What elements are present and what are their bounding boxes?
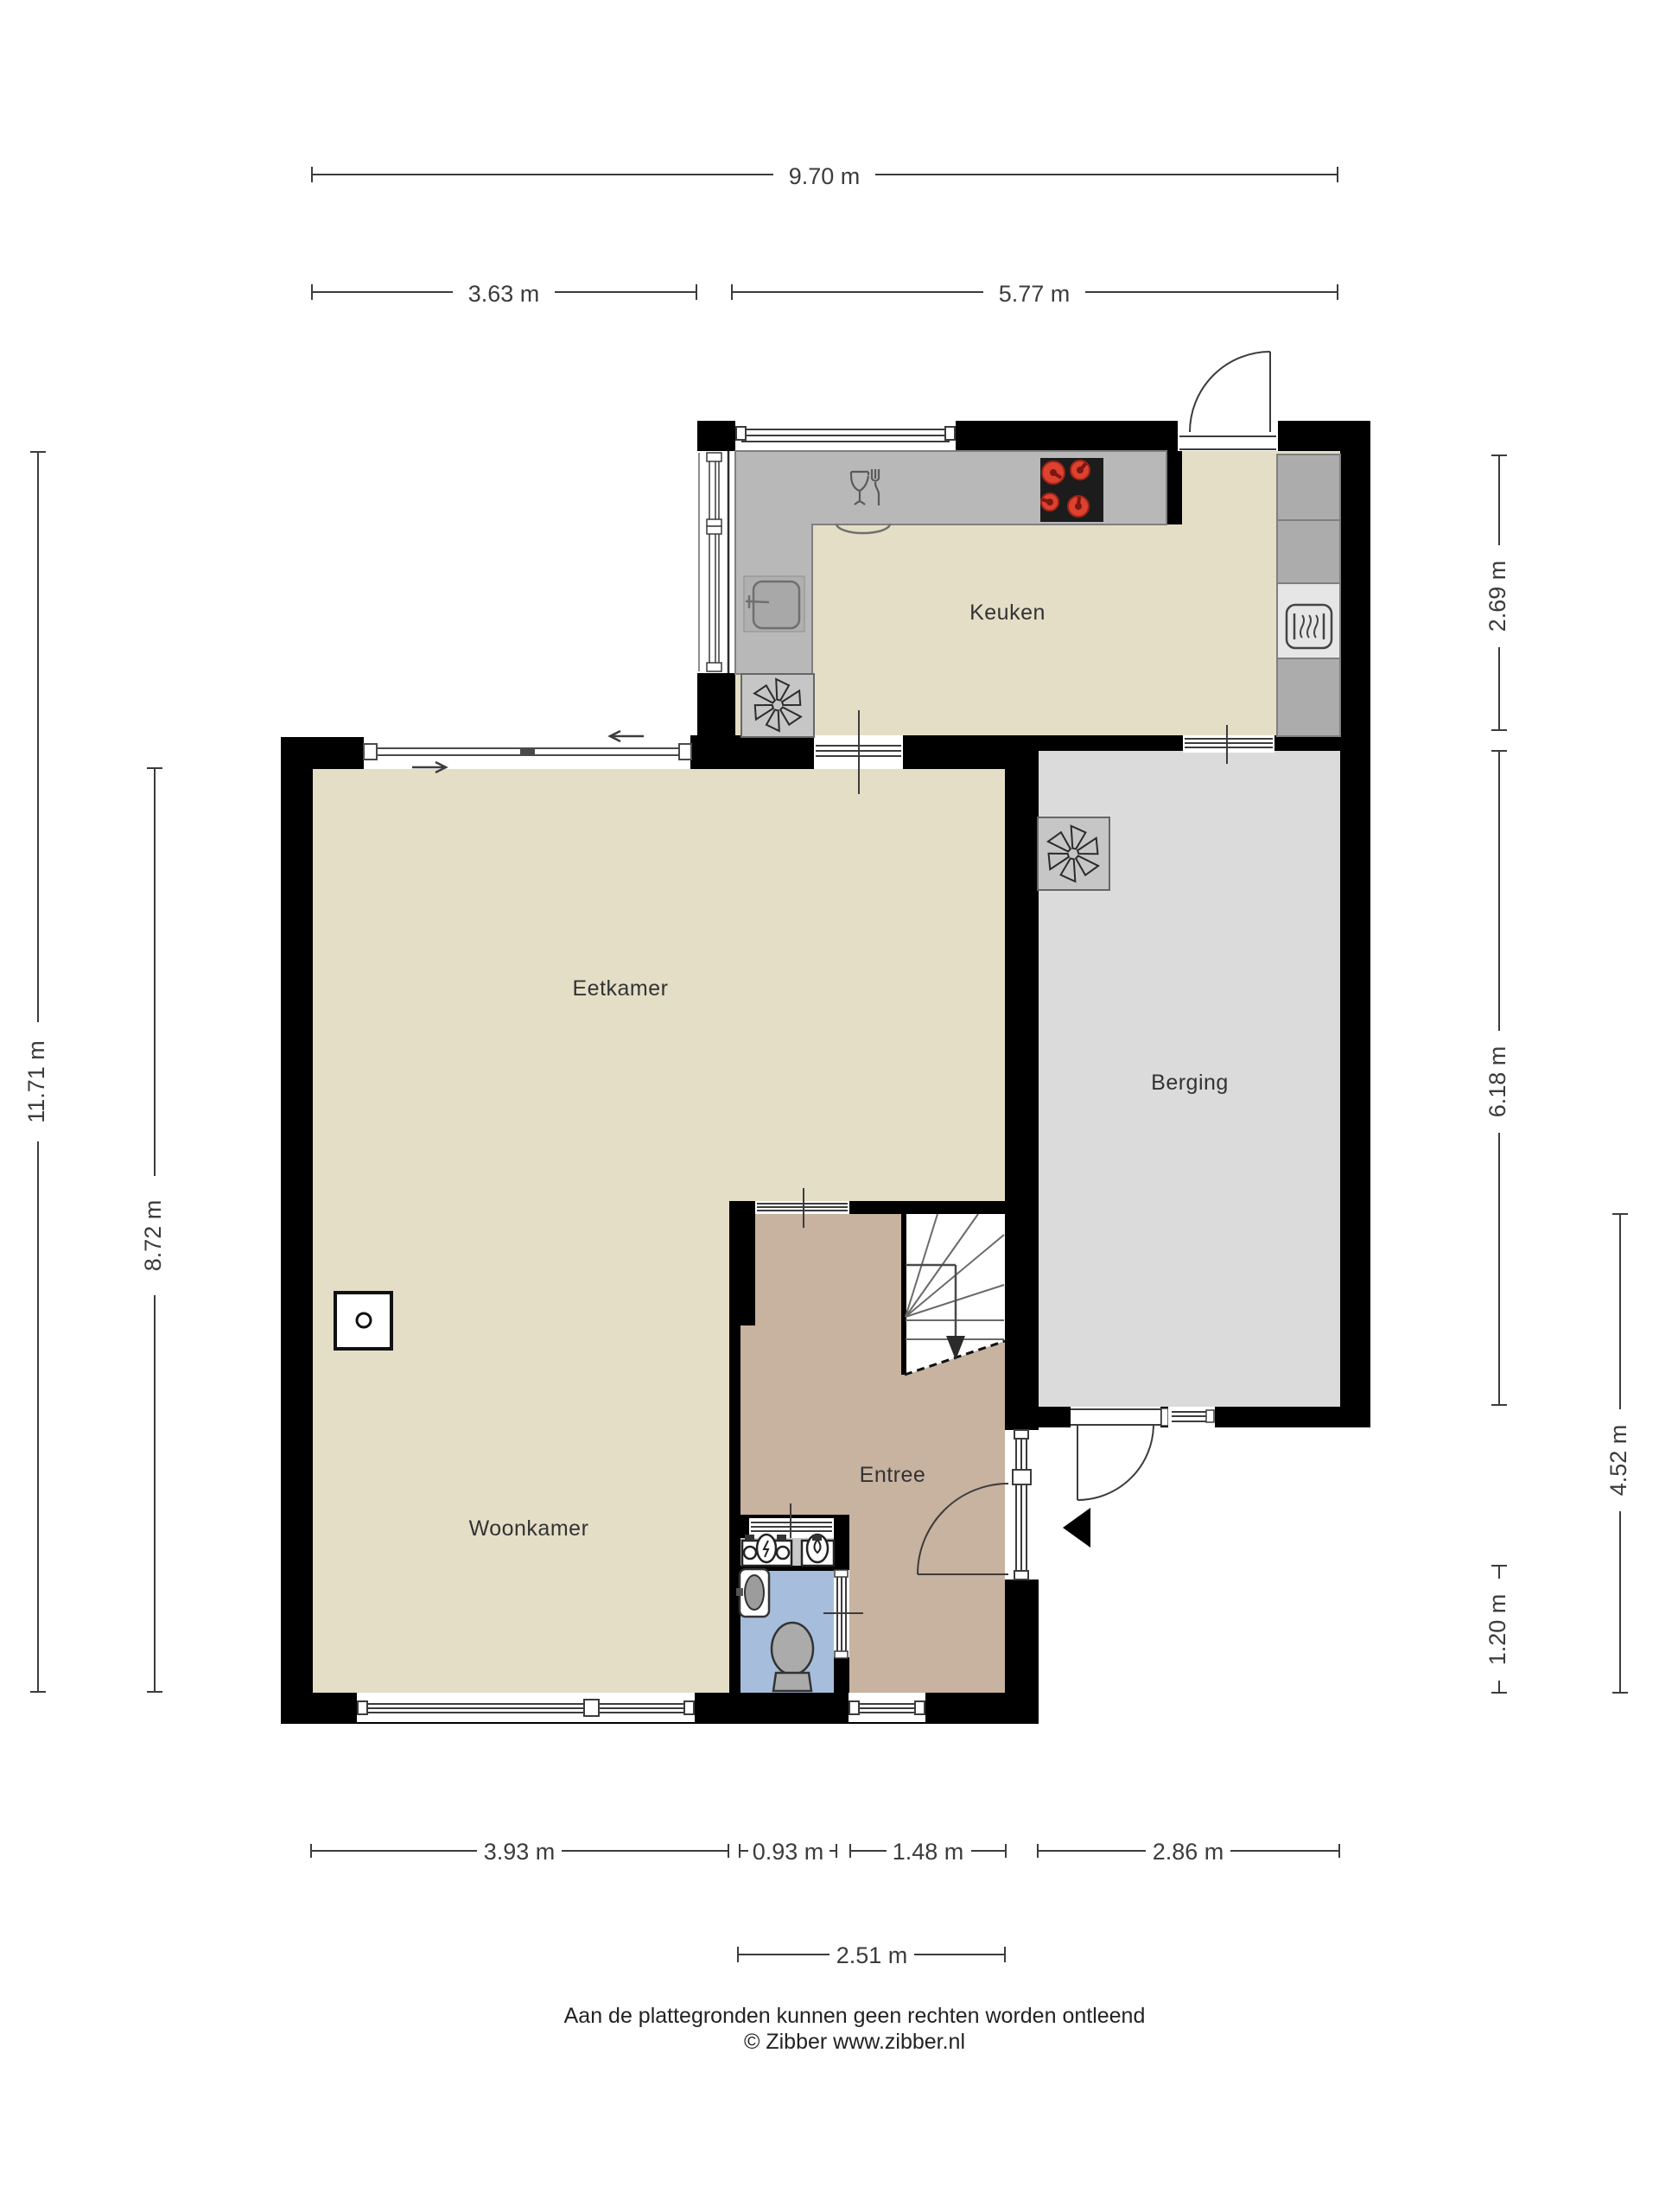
svg-text:Berging: Berging (1151, 1071, 1229, 1095)
svg-text:Keuken: Keuken (969, 601, 1046, 625)
svg-text:3.63 m: 3.63 m (468, 281, 540, 307)
svg-text:0.93 m: 0.93 m (753, 1839, 824, 1865)
svg-text:Woonkamer: Woonkamer (469, 1516, 589, 1541)
svg-text:9.70 m: 9.70 m (789, 163, 861, 189)
svg-text:1.48 m: 1.48 m (893, 1839, 964, 1865)
svg-text:4.52 m: 4.52 m (1605, 1425, 1631, 1497)
svg-text:2.86 m: 2.86 m (1153, 1839, 1224, 1865)
svg-text:11.71 m: 11.71 m (23, 1040, 49, 1123)
svg-text:Entree: Entree (860, 1463, 926, 1487)
svg-text:5.77 m: 5.77 m (999, 281, 1071, 307)
svg-text:Aan de plattegronden kunnen ge: Aan de plattegronden kunnen geen rechten… (564, 2004, 1146, 2028)
svg-text:3.93 m: 3.93 m (484, 1839, 556, 1865)
svg-text:© Zibber www.zibber.nl: © Zibber www.zibber.nl (744, 2030, 965, 2054)
svg-text:2.69 m: 2.69 m (1484, 561, 1510, 632)
svg-text:Eetkamer: Eetkamer (573, 976, 669, 1001)
svg-text:6.18 m: 6.18 m (1484, 1046, 1510, 1118)
svg-text:1.20 m: 1.20 m (1484, 1594, 1510, 1666)
svg-text:2.51 m: 2.51 m (836, 1942, 908, 1968)
svg-text:8.72 m: 8.72 m (140, 1200, 166, 1272)
